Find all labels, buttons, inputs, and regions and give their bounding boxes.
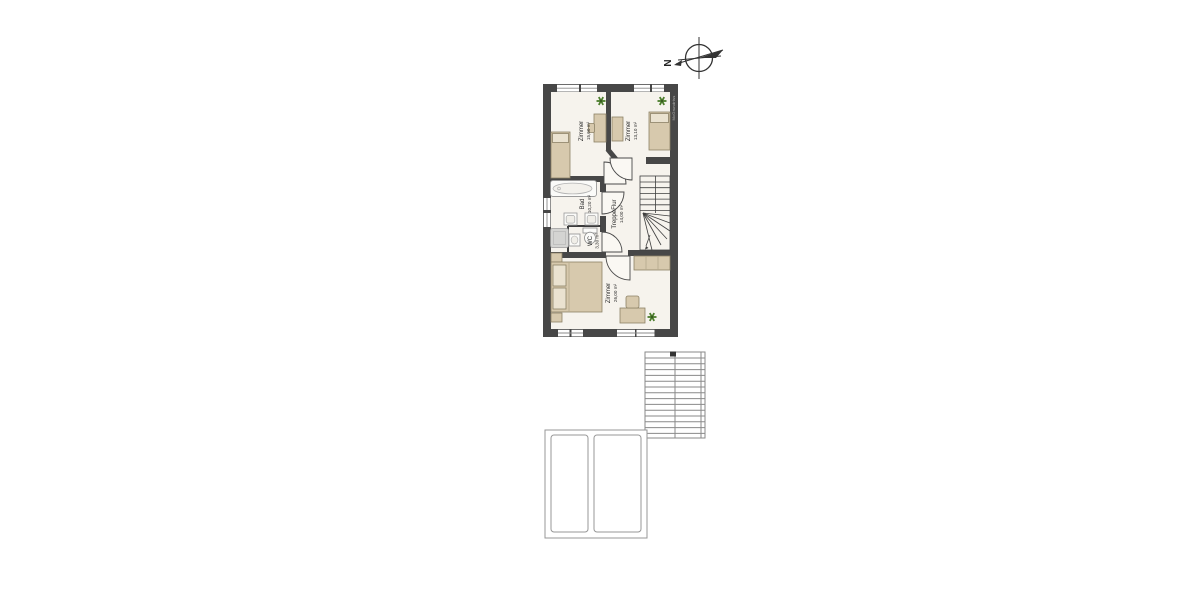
desk-icon (594, 114, 606, 142)
compass-north-label: N (663, 59, 674, 66)
room-area: 14,00 m² (619, 204, 624, 223)
pillow-icon (553, 288, 566, 309)
room-area: 3,30 m² (595, 233, 600, 249)
room-name: Zimmer (626, 121, 632, 141)
pillow-icon (553, 265, 566, 286)
floorplan-drawing: N (0, 0, 1200, 600)
pillow-icon (651, 114, 669, 123)
compass-arrowhead (674, 60, 682, 66)
room-area: 15,60 m² (586, 121, 591, 140)
room-area: 10,20 m² (587, 194, 592, 213)
stair-top-marker (670, 352, 676, 357)
room-name: Bad (580, 199, 586, 210)
chair-icon (626, 296, 639, 308)
carport-panel (594, 435, 641, 532)
nightstand-icon (551, 313, 562, 322)
desk-icon (612, 117, 623, 141)
pillow-icon (553, 134, 569, 143)
nightstand-icon (551, 253, 562, 262)
wardrobe-icon (634, 256, 670, 270)
room-area: 13,10 m² (633, 121, 638, 140)
floorplan-body: Zimmer 15,60 m² Zimmer 13,10 m² Bad 10,2… (543, 84, 678, 337)
compass-rose: N (663, 37, 723, 79)
room-name: Zimmer (606, 283, 612, 303)
room-area: 26,00 m² (613, 283, 618, 302)
carport-outline (545, 430, 647, 538)
room-name: WC (588, 235, 594, 246)
room-name: TreppeFlur (612, 199, 618, 228)
floorplan-page: N (0, 0, 1200, 600)
watermark-text: McGrundriss (671, 96, 676, 121)
desk-icon (620, 308, 645, 323)
carport-panel (551, 435, 588, 532)
exterior-stairs (645, 352, 705, 439)
room-name: Zimmer (579, 121, 585, 141)
